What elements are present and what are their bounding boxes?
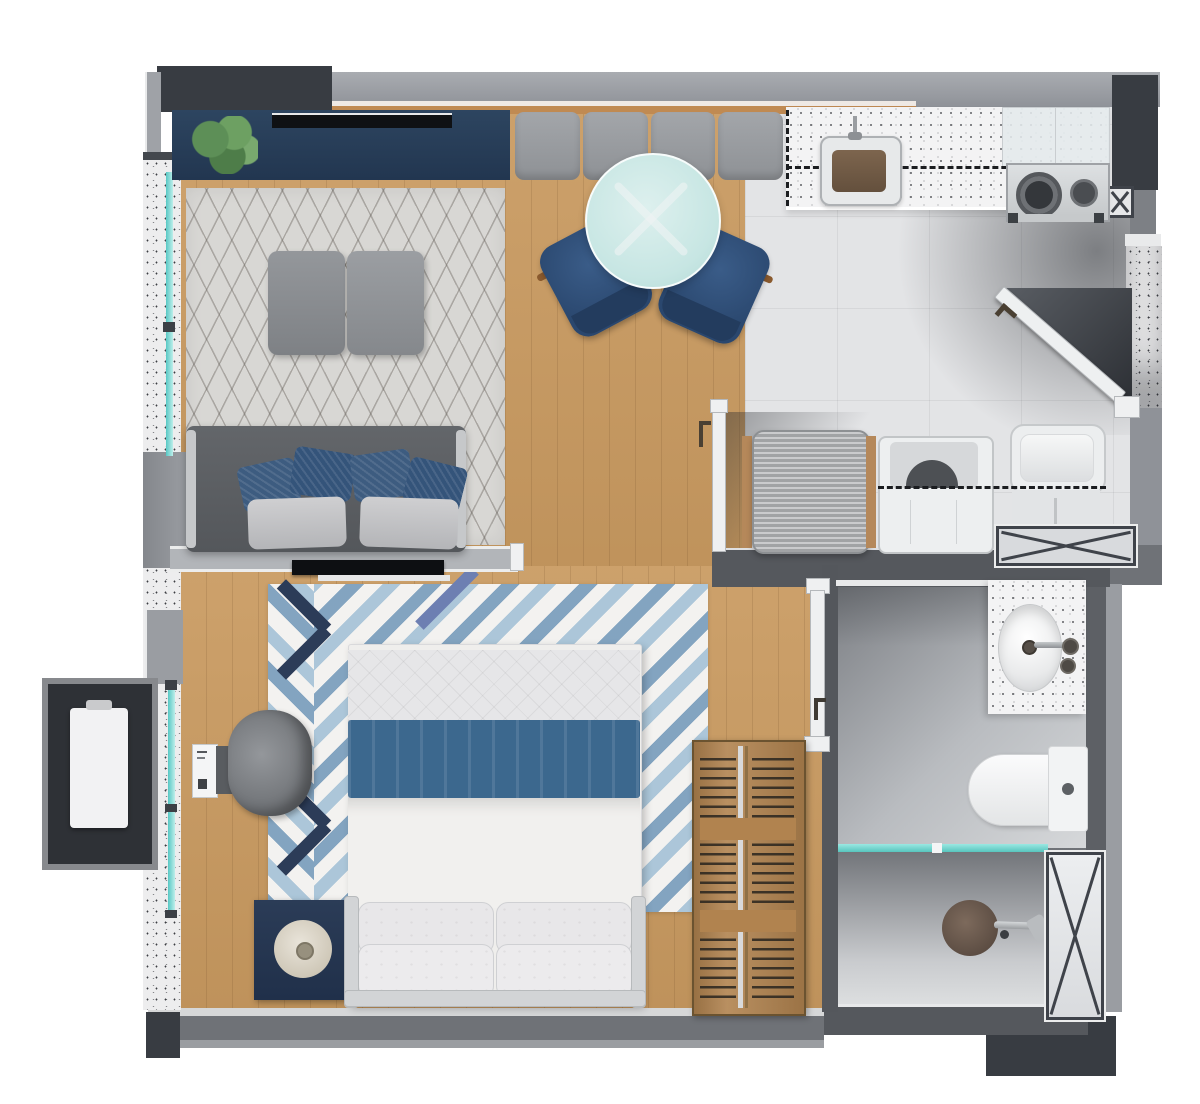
upper-cabinet-dashed-line <box>786 110 789 206</box>
door-handle <box>814 698 818 720</box>
window-mullion <box>165 680 177 690</box>
ac-unit-label <box>198 779 207 789</box>
upper-cabinet-gloss <box>1002 107 1110 167</box>
laundry-wood-post <box>742 436 752 548</box>
faucet-knob <box>1062 638 1079 655</box>
window-mullion <box>163 322 175 332</box>
wardrobe-hangers-left <box>700 758 736 998</box>
gas-shaft-x-duct <box>1106 186 1134 218</box>
burner-large <box>1016 172 1062 218</box>
sink-basin <box>832 150 886 192</box>
nightstand <box>254 900 352 1000</box>
double-bed <box>348 644 640 1004</box>
navy-throw-pillow <box>289 445 358 502</box>
utility-sink-basin <box>1020 434 1094 482</box>
bottom-exterior-wall <box>148 1016 824 1040</box>
ac-unit-vent <box>197 757 205 759</box>
shower-fitting <box>1000 930 1009 939</box>
cabinet-divider <box>1055 108 1056 166</box>
top-right-charcoal-pier <box>1112 75 1158 190</box>
toilet-flush-button <box>1062 783 1074 795</box>
window-glass-living-1 <box>166 172 173 324</box>
duct-x-horizontal <box>996 526 1136 566</box>
ottoman <box>268 251 345 355</box>
wardrobe-rail <box>738 746 743 1008</box>
ac-condenser-platform <box>42 678 158 870</box>
washing-machine <box>878 436 994 554</box>
wardrobe-gap <box>700 910 796 932</box>
ac-indoor-unit <box>192 744 218 798</box>
sofa-armrest <box>186 430 196 548</box>
sofa-seat-cushion <box>247 496 347 549</box>
bed-blue-blanket <box>348 720 640 798</box>
window-glass-bedroom-1 <box>168 688 175 806</box>
bed-folded-duvet <box>348 650 640 722</box>
wardrobe <box>692 740 806 1016</box>
headboard <box>344 990 646 1007</box>
cooktop-handle <box>1008 214 1104 222</box>
duct-x-vertical <box>1046 852 1104 1020</box>
sink-faucet-base <box>848 132 862 140</box>
round-dining-table <box>585 153 717 285</box>
bedroom-door-jamb <box>510 543 524 571</box>
bed-sheet <box>348 798 640 908</box>
handle-cap <box>1008 213 1018 223</box>
window-glass-bedroom-2 <box>168 810 175 912</box>
burner-small <box>1070 179 1098 207</box>
washer-seam <box>910 500 911 544</box>
wardrobe-rail <box>745 746 748 1008</box>
wardrobe-hangers-right <box>752 758 794 998</box>
bedroom-door-leaf-open <box>712 410 726 552</box>
bedroom-tv <box>292 560 444 575</box>
door-jamb <box>710 399 728 413</box>
floor-plan-scene <box>0 0 1200 1104</box>
bottom-left-charcoal-pier <box>146 1012 180 1058</box>
bench-cushion <box>718 112 783 180</box>
window-mullion <box>165 910 177 918</box>
laundry-wood-post <box>866 436 876 548</box>
ac-condenser-unit <box>70 708 128 828</box>
living-room-tv <box>272 113 452 128</box>
door-handle <box>699 421 703 447</box>
shower-glass-partition <box>838 844 1048 852</box>
ac-condenser-valve <box>86 700 112 710</box>
ottoman <box>347 251 424 355</box>
bathroom-door-jamb <box>804 736 830 752</box>
lamp-center <box>296 942 314 960</box>
handle-cap <box>1094 213 1104 223</box>
ribbed-cabinet <box>752 430 870 554</box>
window-glass-living-2 <box>166 330 173 456</box>
utility-sink-drain <box>1054 498 1057 528</box>
sofa-seat-cushion <box>359 496 459 549</box>
kitchen-sink <box>820 136 902 206</box>
window-mullion <box>165 804 177 812</box>
entry-door-jamb <box>1114 396 1140 418</box>
left-exterior-wall <box>143 158 181 1010</box>
shower-drain <box>942 900 998 956</box>
laundry-cabinet-dashed-line <box>878 486 1106 489</box>
left-wall-block <box>145 610 183 684</box>
bench-cushion <box>515 112 580 180</box>
bedroom-tv-shelf <box>318 575 450 581</box>
entry-window-sill <box>1125 234 1161 246</box>
washer-seam <box>956 500 957 544</box>
ac-unit-vent <box>197 751 207 753</box>
utility-sink <box>1010 424 1106 494</box>
bottom-wall-shadow <box>148 1040 824 1048</box>
faucet-knob <box>1060 658 1076 674</box>
potted-plant <box>190 116 258 174</box>
wardrobe-gap <box>700 818 796 840</box>
top-left-wall-return <box>145 72 161 158</box>
top-left-charcoal-pier <box>157 66 332 112</box>
glass-partition-handle <box>932 843 942 853</box>
barrel-chair <box>228 710 312 816</box>
